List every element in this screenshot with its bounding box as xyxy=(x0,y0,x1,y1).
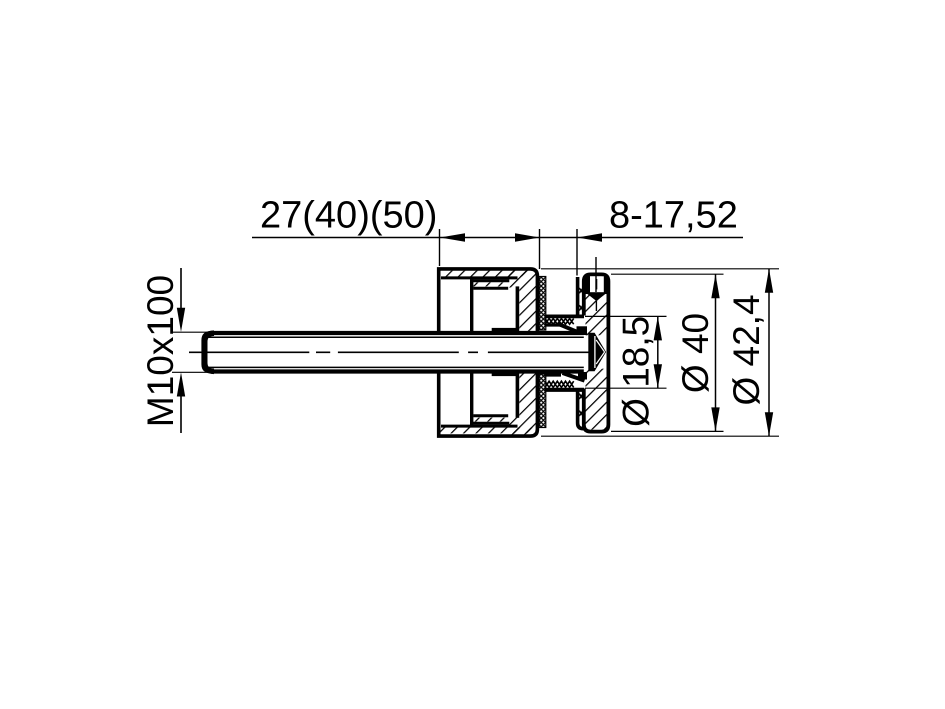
svg-text:27(40)(50): 27(40)(50) xyxy=(260,195,437,237)
svg-text:Ø 18,5: Ø 18,5 xyxy=(616,316,657,427)
svg-text:M10x100: M10x100 xyxy=(140,275,181,427)
svg-text:8-17,52: 8-17,52 xyxy=(609,195,738,237)
svg-text:Ø 40: Ø 40 xyxy=(675,313,716,393)
svg-text:Ø 42,4: Ø 42,4 xyxy=(726,294,767,405)
